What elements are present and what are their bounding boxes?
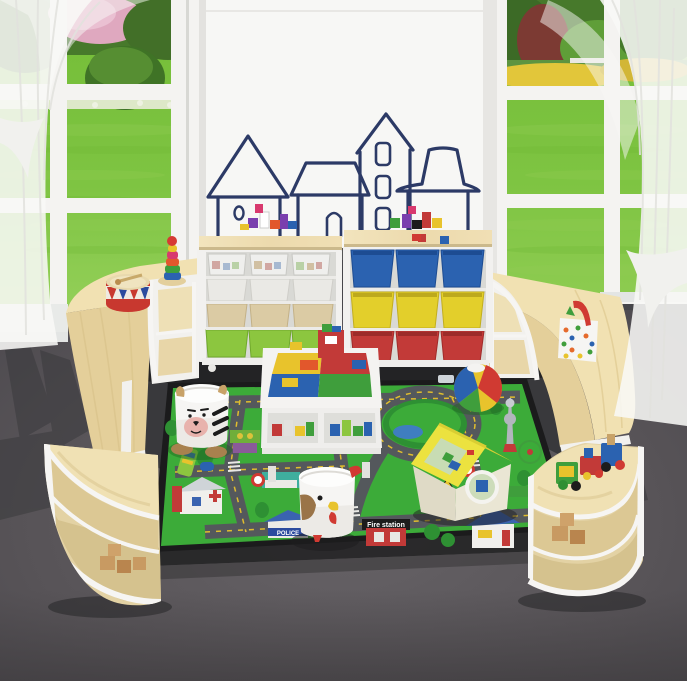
svg-text:Fire station: Fire station bbox=[367, 522, 405, 529]
